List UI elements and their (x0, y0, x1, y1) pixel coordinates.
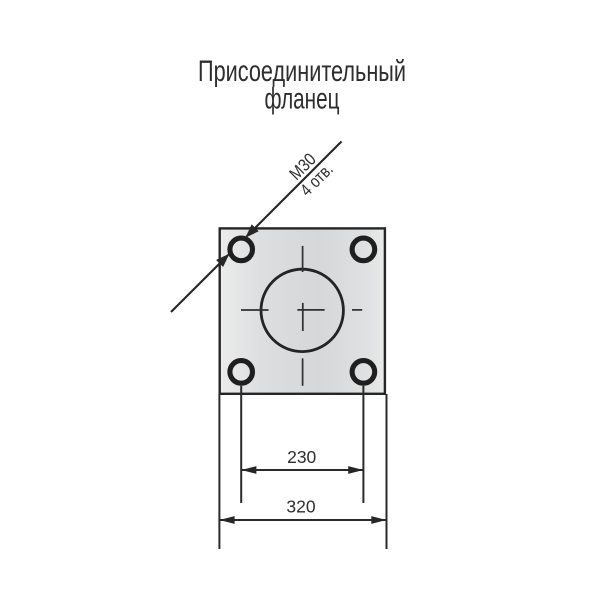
svg-text:фланец: фланец (265, 83, 340, 116)
svg-text:230: 230 (287, 447, 316, 467)
svg-text:320: 320 (286, 497, 315, 517)
